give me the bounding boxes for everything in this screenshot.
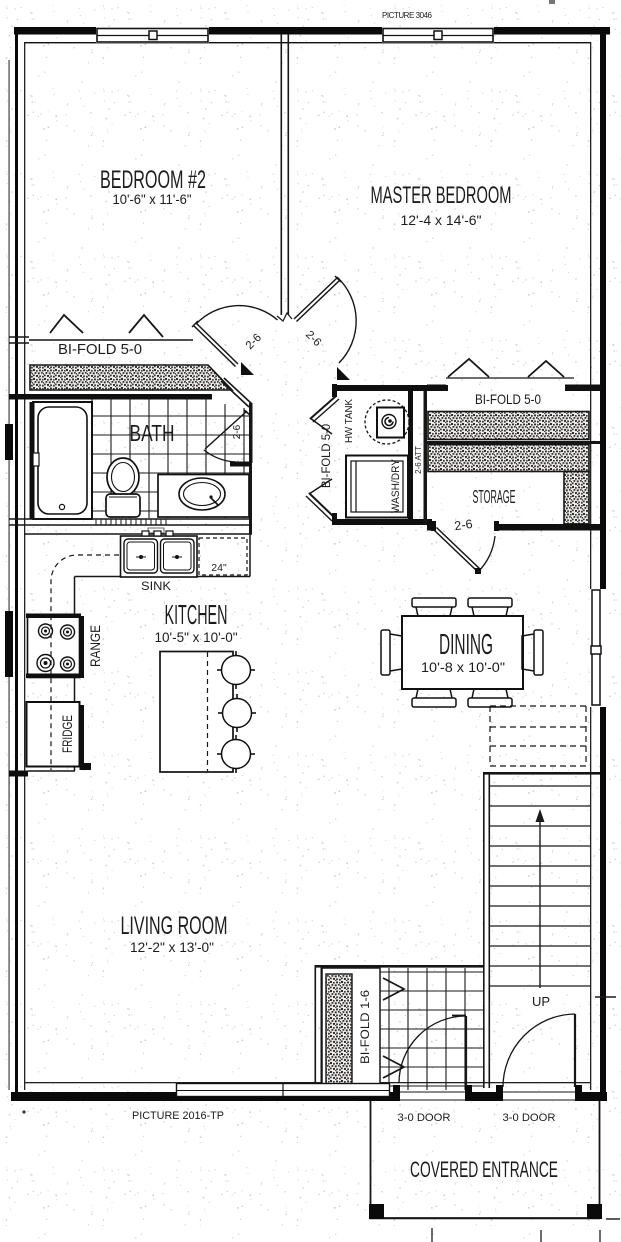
svg-text:MASTER BEDROOM: MASTER BEDROOM [371, 182, 512, 209]
svg-text:BI-FOLD 5-0: BI-FOLD 5-0 [58, 342, 142, 358]
svg-text:3-0 DOOR: 3-0 DOOR [398, 1112, 451, 1124]
svg-text:RANGE: RANGE [87, 625, 103, 667]
svg-text:WASH/DRY: WASH/DRY [390, 458, 402, 513]
svg-text:BI-FOLD 5-0: BI-FOLD 5-0 [475, 391, 541, 407]
svg-text:BI-FOLD 5-0: BI-FOLD 5-0 [319, 424, 333, 488]
svg-text:24": 24" [211, 562, 227, 574]
svg-text:12'-4 x 14'-6": 12'-4 x 14'-6" [401, 212, 482, 228]
svg-text:2-6: 2-6 [454, 517, 474, 533]
svg-text:STORAGE: STORAGE [473, 487, 516, 507]
svg-text:HW TANK: HW TANK [343, 399, 355, 443]
svg-text:COVERED ENTRANCE: COVERED ENTRANCE [410, 1157, 558, 1182]
svg-text:3-0 DOOR: 3-0 DOOR [503, 1112, 556, 1124]
svg-text:FRIDGE: FRIDGE [59, 715, 75, 753]
svg-text:UP: UP [532, 994, 550, 1009]
svg-text:LIVING ROOM: LIVING ROOM [121, 912, 228, 940]
svg-text:BEDROOM #2: BEDROOM #2 [100, 166, 206, 194]
svg-text:DINING: DINING [439, 629, 493, 661]
svg-text:BATH: BATH [130, 420, 175, 446]
svg-text:10'-5" x 10'-0": 10'-5" x 10'-0" [155, 629, 238, 645]
svg-text:10'-8 x 10'-0": 10'-8 x 10'-0" [421, 659, 505, 675]
svg-text:2-6: 2-6 [232, 424, 243, 439]
svg-text:PICTURE 3046: PICTURE 3046 [382, 11, 433, 20]
svg-text:2-6 ATT: 2-6 ATT [414, 446, 423, 474]
svg-text:12'-2" x 13'-0": 12'-2" x 13'-0" [130, 939, 214, 955]
svg-text:SINK: SINK [141, 581, 171, 593]
svg-text:10'-6" x 11'-6": 10'-6" x 11'-6" [113, 191, 192, 207]
svg-text:BI-FOLD 1-6: BI-FOLD 1-6 [358, 990, 372, 1064]
svg-text:PICTURE 2016-TP: PICTURE 2016-TP [132, 1110, 224, 1122]
svg-text:KITCHEN: KITCHEN [165, 599, 228, 630]
